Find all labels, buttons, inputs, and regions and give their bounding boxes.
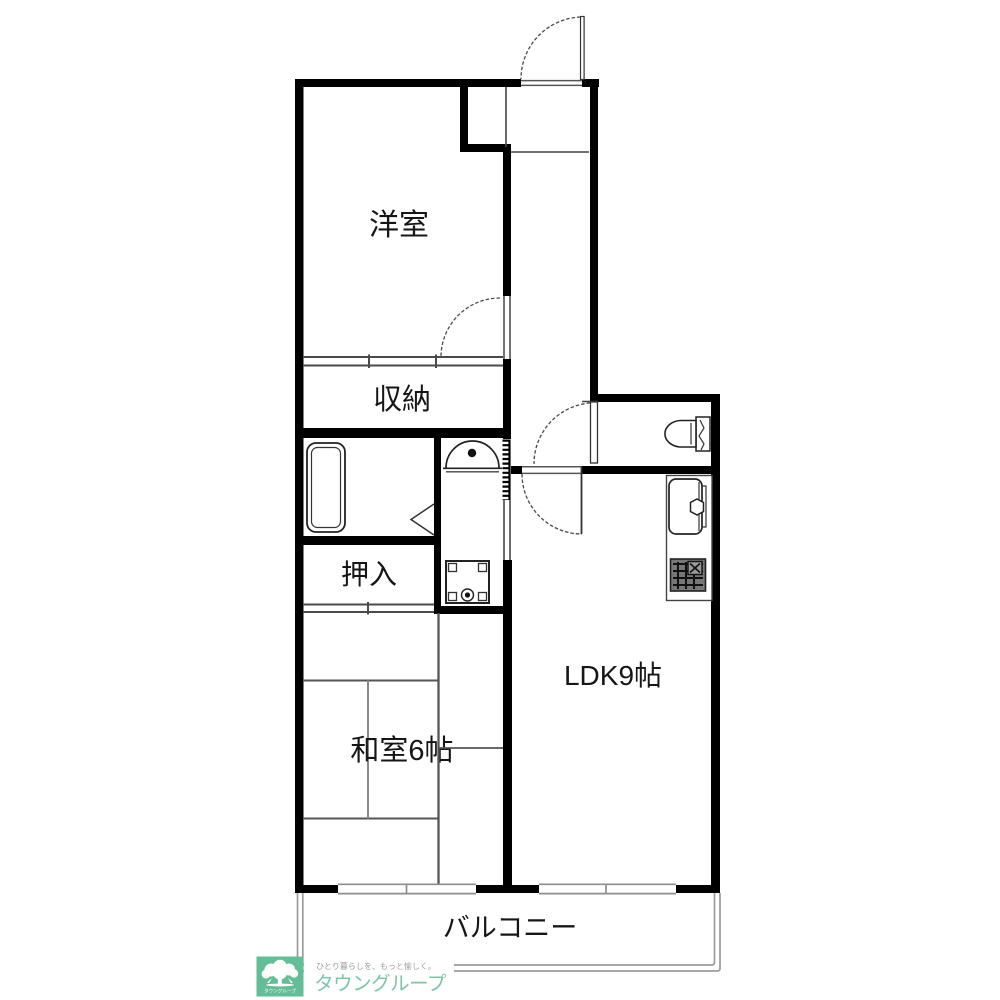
svg-text:収納: 収納	[373, 383, 431, 416]
svg-text:洋室: 洋室	[369, 209, 429, 242]
svg-text:タウングループ: タウングループ	[314, 973, 447, 995]
svg-text:タウングループ: タウングループ	[264, 988, 296, 995]
svg-text:ひとり暮らしを、もっと愉しく。: ひとり暮らしを、もっと愉しく。	[316, 961, 436, 971]
svg-text:押入: 押入	[341, 559, 397, 590]
svg-text:バルコニー: バルコニー	[443, 913, 577, 943]
svg-text:LDK9帖: LDK9帖	[564, 660, 662, 691]
